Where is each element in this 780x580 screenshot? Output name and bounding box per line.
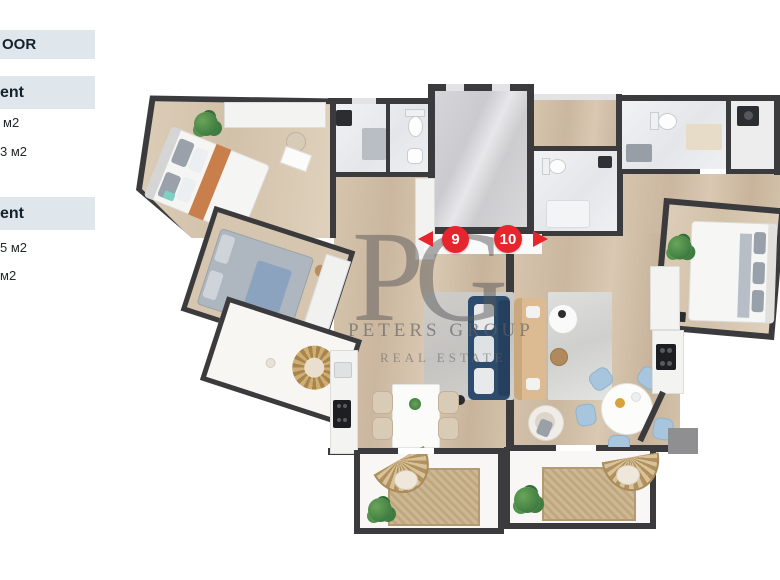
apartment-1-area-1: м2 [3, 115, 19, 130]
sofa-pillow [526, 378, 540, 390]
wall-stub [668, 428, 698, 454]
apartment-1-title: ent [0, 84, 24, 102]
toilet-icon [658, 113, 677, 130]
core-door-top-left [446, 84, 464, 91]
plant-icon [514, 487, 540, 513]
chair-seat [394, 470, 418, 490]
apartment-1-area-2: 3 м2 [0, 144, 27, 159]
plant-icon [368, 498, 392, 522]
washing-machine-icon [336, 110, 352, 126]
dining-chair [372, 391, 393, 414]
table-food-icon [615, 398, 625, 408]
entrance-arrow-right-icon [533, 231, 548, 247]
coffee-table-round [548, 304, 578, 334]
apartment-2-area-2: м2 [0, 268, 16, 283]
washer-door-icon [744, 111, 753, 120]
pillow [753, 232, 766, 254]
outer-wall-right [774, 95, 780, 175]
bath-mat [686, 124, 722, 150]
chair-seat [616, 465, 640, 485]
table-plate-icon [631, 392, 641, 402]
sofa-backrest [498, 300, 510, 396]
floor-header-text: OOR [2, 36, 36, 53]
pillow [752, 262, 765, 284]
apt9-bathroom-divider-wall [386, 104, 390, 172]
dining-chair [438, 417, 459, 440]
pillow [202, 270, 224, 301]
apt10-bathroom-door [700, 169, 726, 174]
apartment-2-title: ent [0, 205, 24, 223]
table-flowers-icon [409, 398, 421, 410]
core-door-top-right [492, 84, 510, 91]
pillow [751, 290, 764, 312]
unit-marker-9: 9 [442, 226, 469, 253]
cooktop-icon [656, 344, 676, 370]
floor-plan-page: OOR ent м2 3 м2 ent 5 м2 м2 [0, 0, 780, 580]
side-table-wood [550, 348, 568, 366]
shower-mat [626, 144, 652, 162]
shower-tray [546, 200, 590, 228]
toilet-icon [549, 159, 566, 174]
dining-chair [372, 417, 393, 440]
watermark-name: PETERS GROUP [348, 320, 534, 342]
plant-icon [667, 234, 693, 260]
apartment-2-area-1: 5 м2 [0, 240, 27, 255]
cooktop-icon [333, 400, 351, 428]
table-tray-icon [558, 310, 566, 318]
apt10-balcony-door [556, 445, 596, 451]
pillow [214, 234, 236, 265]
sofa-pillow [526, 306, 540, 318]
bed-headboard [765, 224, 776, 322]
dining-chair-blue [574, 402, 598, 427]
apt9-bathroom-door [352, 98, 376, 104]
kitchen-sink-icon [334, 362, 352, 378]
toilet-icon [408, 116, 423, 137]
wardrobe [224, 102, 326, 128]
bed-double [688, 221, 777, 324]
dining-table-rect [392, 384, 440, 448]
shower-mat [362, 128, 386, 160]
entrance-arrow-left-icon [418, 231, 433, 247]
apt10-hall-window [534, 94, 622, 100]
sofa-backrest [514, 298, 522, 400]
apt9-balcony [354, 450, 504, 534]
apt10-balcony [504, 447, 656, 529]
apt10-kitchen-column [650, 266, 680, 330]
bidet-icon [407, 148, 423, 164]
lamp-icon [264, 357, 277, 370]
sofa-tan [514, 298, 546, 400]
apt9-balcony-door [398, 448, 434, 454]
sink-icon [598, 156, 612, 168]
sofa-cushion [474, 368, 494, 394]
dining-chair [438, 391, 459, 414]
bed-blanket [737, 233, 752, 317]
unit-marker-10: 10 [494, 225, 522, 253]
plant-icon [194, 112, 218, 136]
watermark-tagline: REAL ESTATE [380, 350, 507, 366]
